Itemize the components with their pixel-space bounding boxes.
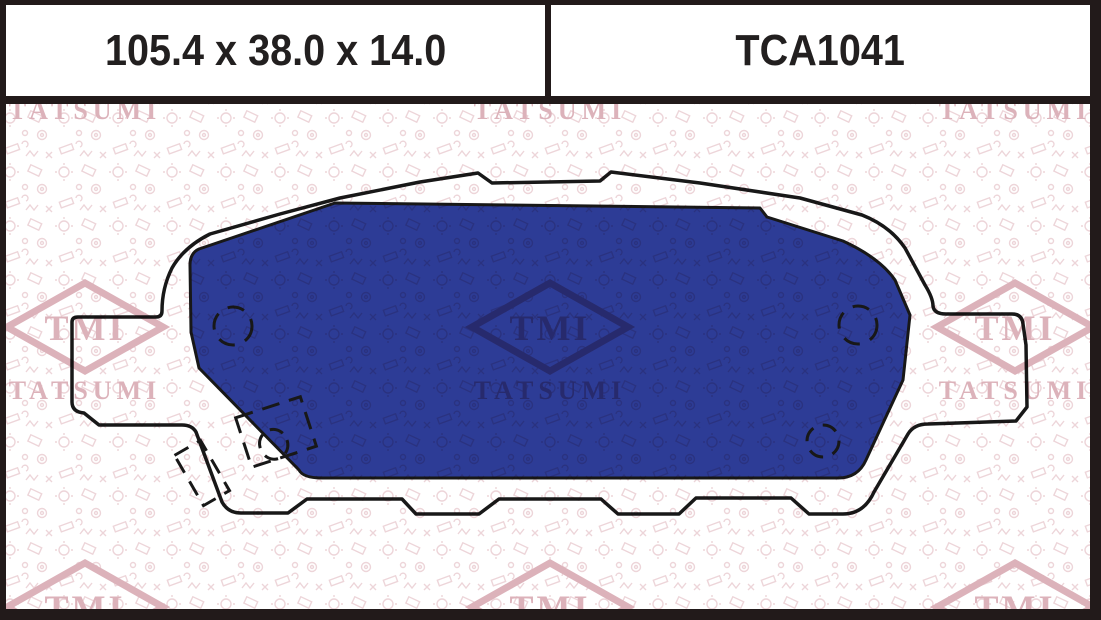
part-number-label: TCA1041 bbox=[736, 26, 905, 76]
dimensions-label: 105.4 x 38.0 x 14.0 bbox=[105, 26, 446, 76]
header-row: 105.4 x 38.0 x 14.0 TCA1041 bbox=[0, 0, 1101, 104]
drawing-area: TMI TATSUMI bbox=[0, 104, 1101, 609]
header-bottom-border bbox=[0, 96, 1101, 104]
watermark-layer: TMI TATSUMI bbox=[0, 104, 1101, 609]
catalog-card: TMI TATSUMI 105.4 x 38.0 x 14.0 TC bbox=[0, 0, 1101, 620]
part-number-cell: TCA1041 bbox=[551, 5, 1090, 96]
tool-icon-texture bbox=[0, 104, 1101, 609]
dimensions-cell: 105.4 x 38.0 x 14.0 bbox=[6, 5, 545, 96]
